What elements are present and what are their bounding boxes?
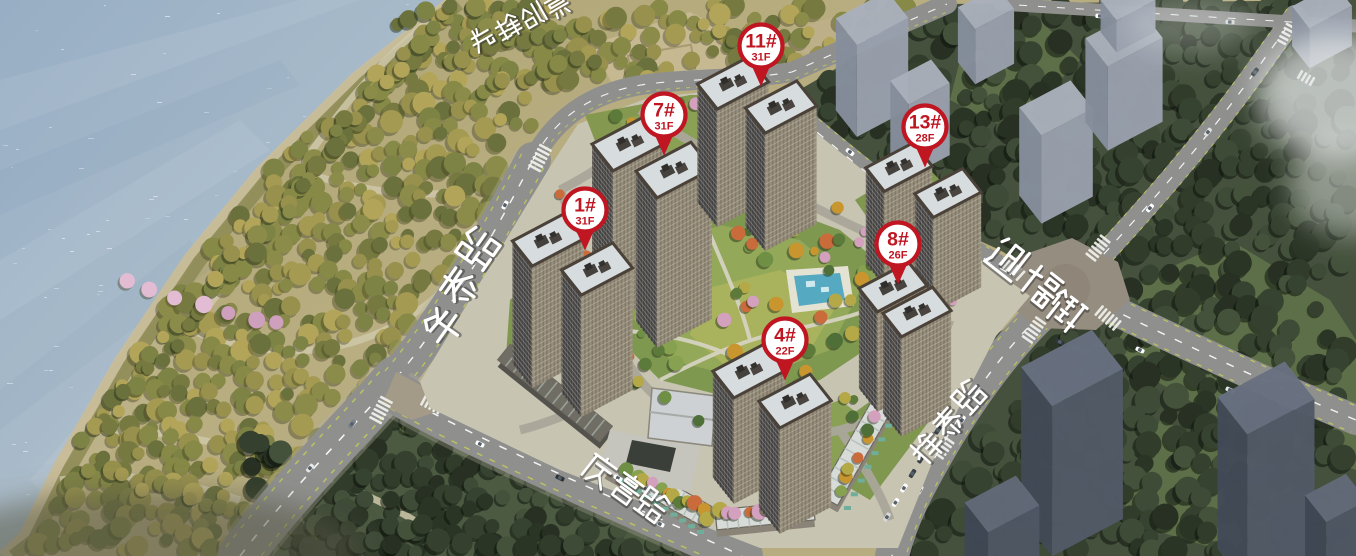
svg-text:31F: 31F <box>576 216 595 228</box>
svg-text:31F: 31F <box>752 52 771 64</box>
svg-text:26F: 26F <box>889 250 908 262</box>
svg-text:1#: 1# <box>574 195 596 217</box>
svg-text:11#: 11# <box>745 31 777 53</box>
svg-text:22F: 22F <box>776 346 795 358</box>
svg-text:8#: 8# <box>887 229 909 251</box>
svg-text:4#: 4# <box>774 325 796 347</box>
svg-text:31F: 31F <box>655 121 674 133</box>
svg-text:13#: 13# <box>909 112 942 134</box>
svg-text:28F: 28F <box>916 133 935 145</box>
svg-text:7#: 7# <box>653 100 675 122</box>
